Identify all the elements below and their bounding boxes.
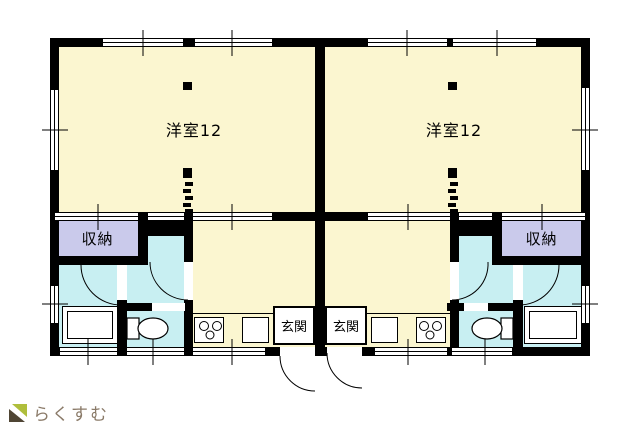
- bathtub-inner: [67, 311, 113, 339]
- partition-dash: [185, 182, 193, 186]
- partition-dash: [450, 209, 458, 213]
- site-logo[interactable]: らくすむ: [8, 400, 109, 425]
- partition-dash: [448, 203, 456, 207]
- window: [193, 347, 265, 356]
- window: [375, 347, 447, 356]
- partition-dash: [183, 203, 191, 207]
- toilet-room-left: [127, 311, 184, 347]
- partition-dash: [450, 196, 458, 200]
- window: [581, 286, 590, 323]
- entrance-door-opening-right: [327, 347, 362, 356]
- counter-edge-right: [365, 313, 450, 314]
- toilet-door-opening-left: [152, 303, 185, 311]
- entrance-right: 玄関: [325, 306, 367, 345]
- window: [60, 347, 117, 356]
- partition-dash: [183, 189, 191, 193]
- pillar-mark: [448, 82, 457, 90]
- bathtub-right: [524, 306, 582, 344]
- sink-left: [242, 317, 269, 343]
- entrance-label-right: 玄関: [333, 316, 359, 335]
- window: [581, 88, 590, 170]
- bathtub-inner: [529, 311, 577, 339]
- entrance-door-arc-left: [280, 356, 315, 391]
- entrance-door-arc-right: [327, 353, 362, 388]
- sliding-door: [368, 212, 450, 221]
- entrance-left: 玄関: [273, 306, 315, 345]
- window: [452, 347, 512, 356]
- logo-text[interactable]: らくすむ: [33, 400, 109, 425]
- stove-right: [416, 317, 446, 343]
- bath-door-opening-left: [117, 265, 127, 300]
- partition-dash: [450, 182, 458, 186]
- entrance-label-left: 玄関: [281, 316, 307, 335]
- storage-label-left: 収納: [57, 221, 138, 256]
- window: [50, 286, 59, 323]
- partition-dash: [185, 209, 193, 213]
- partition-post: [448, 168, 457, 178]
- window: [453, 38, 536, 47]
- window: [195, 38, 272, 47]
- washroom-door-opening-right: [450, 262, 459, 300]
- counter-edge-left: [193, 313, 275, 314]
- window: [368, 38, 447, 47]
- sliding-door: [55, 212, 138, 221]
- pillar-mark: [183, 82, 192, 90]
- sink-right: [371, 317, 398, 343]
- sliding-door: [459, 212, 492, 221]
- toilet-door-opening-right: [464, 303, 488, 311]
- room-label-left: 洋室12: [134, 117, 254, 135]
- wall-closet-bottom-right: [492, 256, 590, 265]
- house-icon: [8, 403, 28, 423]
- washroom-door-opening-left: [184, 262, 193, 300]
- window: [50, 90, 59, 170]
- washroom-right-ext: [492, 265, 513, 303]
- entrance-door-opening-left: [280, 347, 315, 356]
- washroom-right: [459, 236, 492, 303]
- sliding-door: [148, 212, 184, 221]
- stove-left: [194, 317, 224, 343]
- window: [103, 38, 183, 47]
- washroom-left-ext: [127, 265, 148, 303]
- washroom-left: [148, 236, 184, 303]
- party-wall: [315, 38, 325, 356]
- partition-post: [183, 168, 192, 178]
- window: [127, 347, 184, 356]
- partition-dash: [185, 196, 193, 200]
- bath-door-opening-right: [513, 265, 523, 300]
- room-label-right: 洋室12: [394, 117, 514, 135]
- floor-plan: 玄関 玄関 洋室12 洋室12 収納 収納: [0, 0, 640, 425]
- storage-label-right: 収納: [502, 221, 581, 256]
- partition-dash: [448, 189, 456, 193]
- sliding-door: [502, 212, 585, 221]
- bathtub-left: [62, 306, 118, 344]
- toilet-room-right: [452, 311, 513, 347]
- sliding-door: [193, 212, 272, 221]
- wall-closet-bottom-left: [50, 256, 148, 265]
